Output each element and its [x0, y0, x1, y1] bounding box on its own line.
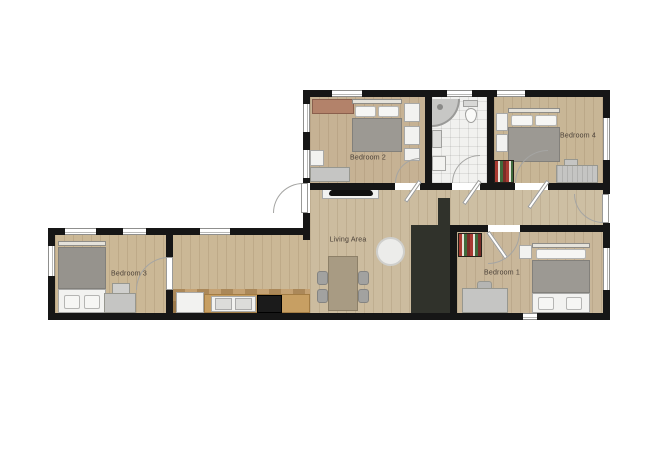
wall — [450, 225, 457, 320]
desk — [462, 288, 508, 313]
door-leaf — [166, 257, 173, 290]
bed-pillow — [511, 115, 533, 126]
room-label-bedroom-3: Bedroom 3 — [111, 271, 147, 278]
nightstand — [496, 134, 508, 152]
bookshelf — [458, 233, 482, 257]
wall — [487, 97, 494, 183]
bed-bench-cushion — [538, 297, 554, 310]
bed-bench-cushion — [566, 297, 582, 310]
dining-table — [328, 256, 358, 311]
sofa — [411, 225, 450, 313]
door-opening — [488, 225, 520, 232]
entrance-door-leaf — [301, 183, 308, 213]
window — [303, 150, 310, 178]
nightstand — [404, 103, 420, 122]
radiator — [556, 165, 598, 183]
bathroom-cabinet — [432, 156, 446, 171]
window — [497, 90, 525, 97]
room-label-bedroom-1: Bedroom 1 — [484, 270, 520, 277]
dining-chair — [358, 289, 369, 303]
door-swing-arc — [273, 183, 303, 213]
bed-bench-cushion — [64, 295, 80, 309]
bed-double — [532, 260, 590, 293]
room-label-living-area: Living Area — [330, 237, 367, 244]
window — [603, 248, 610, 290]
window — [603, 118, 610, 160]
window — [332, 90, 362, 97]
wall — [425, 97, 432, 183]
bed-pillow — [355, 106, 376, 117]
bed-headboard — [58, 241, 106, 246]
window — [48, 246, 55, 276]
window — [303, 104, 310, 132]
bed-headboard — [508, 108, 560, 113]
room-label-bedroom-4: Bedroom 4 — [560, 133, 596, 140]
sofa-arm — [438, 198, 450, 226]
window — [523, 313, 537, 320]
room-label-bedroom-2: Bedroom 2 — [350, 155, 386, 162]
fridge — [176, 292, 204, 313]
sink — [432, 130, 442, 148]
door-leaf — [602, 194, 609, 223]
sink-basin — [215, 298, 232, 310]
window — [200, 228, 230, 235]
radiator-step — [564, 159, 578, 166]
sink-basin — [235, 298, 252, 310]
bed-pillow — [536, 249, 586, 259]
floor-plan: Bedroom 2 Bedroom 4 Bedroom 1 Bedroom 3 … — [0, 0, 672, 475]
bed-double — [58, 247, 106, 289]
bed-headboard — [352, 99, 402, 104]
nightstand — [519, 245, 532, 259]
dresser — [312, 99, 354, 114]
shower-head — [437, 104, 443, 110]
bed-headboard — [532, 243, 590, 248]
dining-chair — [317, 289, 328, 303]
wall — [450, 225, 610, 232]
dining-chair — [358, 271, 369, 285]
dresser — [104, 293, 136, 313]
wardrobe — [310, 150, 324, 166]
window — [123, 228, 146, 235]
bed-pillow — [378, 106, 399, 117]
nightstand — [496, 113, 508, 131]
dining-chair — [317, 271, 328, 285]
bookshelf — [494, 160, 514, 183]
window — [65, 228, 96, 235]
bed-pillow — [535, 115, 557, 126]
bed-double — [352, 118, 402, 152]
desk — [310, 167, 350, 182]
stove — [257, 295, 282, 313]
window — [447, 90, 472, 97]
nightstand — [404, 126, 420, 145]
round-rug — [376, 237, 405, 266]
bed-bench-cushion — [84, 295, 100, 309]
toilet-tank — [463, 100, 478, 107]
